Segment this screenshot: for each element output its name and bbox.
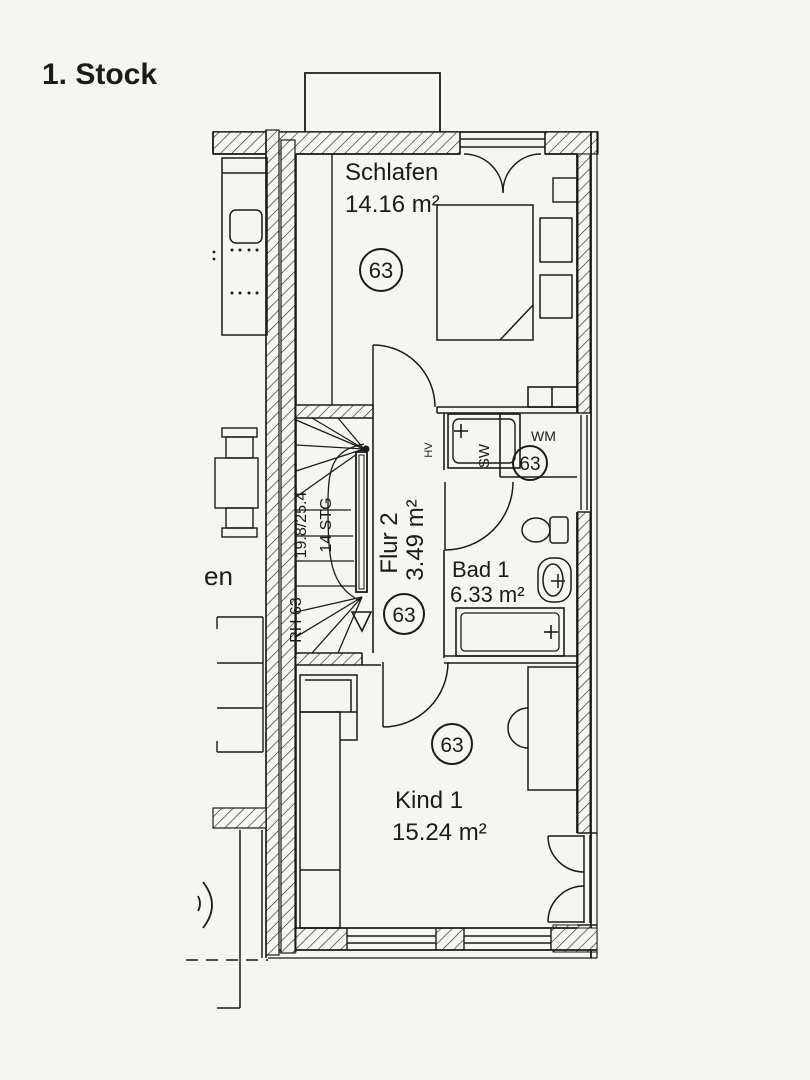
bottom-wall-pier-1 (296, 928, 347, 950)
floorplan-drawing: 1. Stock (0, 0, 810, 1080)
schlafen-window (460, 132, 545, 193)
unit-number-flur: 63 (392, 604, 415, 627)
stair-house-ref-label: RH 63 (288, 597, 305, 642)
nightstand-1 (540, 218, 572, 262)
room-label-flur: Flur 2 (376, 512, 403, 573)
chair (508, 708, 528, 748)
bathtub-fixture (456, 608, 564, 656)
neighbor-wardrobe (217, 617, 263, 752)
stair-newel (363, 446, 370, 453)
unit-number-kind: 63 (440, 734, 463, 757)
kind-window-2 (464, 928, 551, 950)
room-label-kind: Kind 1 (395, 787, 463, 814)
neighbor-unit: en (186, 158, 268, 1008)
area-label-bad: 6.33 m² (450, 582, 525, 607)
area-label-kind: 15.24 m² (392, 819, 487, 846)
site-lines (186, 830, 268, 1008)
kind-window-1 (347, 928, 436, 950)
stair-rise-run-label: 19.8/25.4 (293, 492, 310, 559)
top-wall-hatch-right (545, 132, 598, 154)
kind-bed-wardrobe (300, 675, 357, 928)
bad-window (577, 413, 591, 512)
area-label-schlafen: 14.16 m² (345, 191, 440, 218)
neighbor-room-label-fragment: en (204, 561, 233, 591)
neighbor-hob-dots (213, 249, 259, 295)
toilet-fixture (522, 517, 568, 543)
area-label-flur: 3.49 m² (402, 499, 429, 580)
bottom-wall-pier-3 (551, 928, 597, 950)
bottom-wall (266, 928, 597, 958)
neighbor-kitchen-counter (222, 158, 267, 335)
roof-protrusion (305, 73, 440, 132)
page-title: 1. Stock (42, 58, 157, 91)
room-label-schlafen: Schlafen (345, 159, 438, 186)
bed (437, 205, 533, 340)
neighbor-table (215, 458, 258, 508)
shower-label: SW (476, 443, 493, 468)
schlafen-room: Schlafen 14.16 m² 63 (332, 154, 577, 405)
desk (528, 667, 577, 790)
neighbor-unit-circle-fragment (198, 882, 212, 928)
stair-steps-label: 14 STG (318, 497, 335, 552)
schlafen-stair-wall (296, 405, 373, 418)
bad-room: SW WM 63 Bad 1 6.33 m² (448, 414, 571, 656)
washing-machine-label: WM (531, 428, 556, 444)
floorplan-page: 1. Stock (0, 0, 810, 1080)
door-schlafen (373, 345, 435, 407)
party-wall (266, 130, 296, 958)
room-label-bad: Bad 1 (452, 557, 510, 582)
top-wall-hatch (213, 132, 460, 154)
door-bad (445, 482, 513, 550)
bottom-wall-pier-2 (436, 928, 464, 950)
neighbor-dining-set (215, 428, 258, 537)
unit-number-bad: 63 (519, 454, 540, 475)
neighbor-sink (230, 210, 262, 243)
door-kind (383, 662, 448, 727)
right-wall-hatch-2 (578, 512, 590, 833)
schlafen-shelf (553, 178, 577, 202)
right-wall-hatch-1 (578, 154, 590, 413)
kind-room: 63 Kind 1 15.24 m² (300, 667, 577, 928)
unit-number-schlafen: 63 (369, 258, 393, 283)
heating-label: HV (423, 442, 435, 458)
neighbor-wall (213, 808, 266, 828)
nightstand-2 (540, 275, 572, 318)
stair-handrail (356, 452, 367, 592)
kind-balcony-door (548, 833, 597, 925)
washbasin-fixture (538, 558, 571, 602)
stair-flur-wall (296, 653, 362, 665)
